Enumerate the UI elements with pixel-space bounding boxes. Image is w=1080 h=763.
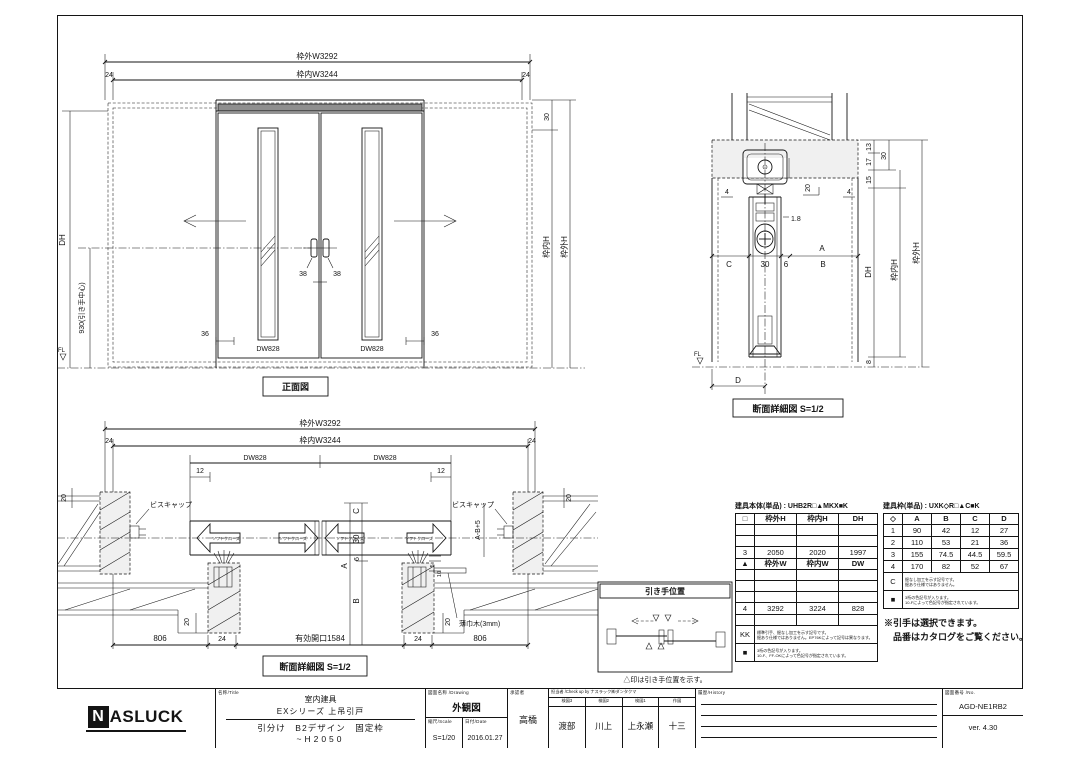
- skirting-label: 薄巾木(3mm): [459, 619, 500, 628]
- note-text: 3桁の色記号が入ります。10-Fによって色記号が指定されています。: [903, 591, 1019, 609]
- title-block: N ASLUCK 名称/Title 室内建具 EXシリーズ 上吊引戸 引分け B…: [57, 688, 1023, 748]
- view-title: 正面図: [282, 382, 309, 392]
- floor-level-label: FL: [58, 348, 66, 354]
- handle-mark-bottom: [646, 643, 652, 649]
- dim-label: 1.8: [791, 216, 801, 223]
- checker-name: 十三: [659, 707, 695, 732]
- dim-label: 8: [866, 360, 873, 364]
- product-series: EXシリーズ 上吊引戸: [216, 706, 425, 717]
- approver-label: 承認者: [510, 690, 524, 696]
- dim-label: 30: [544, 113, 551, 121]
- note-text: 標準引手、掘なし加工を示す記号です。掘あり仕様ではありません。EP76Kによって…: [755, 626, 878, 644]
- version: ver. 4.30: [943, 723, 1023, 732]
- section-walls: [712, 178, 858, 362]
- checker-role: 検図2: [586, 698, 622, 707]
- cell: 21: [961, 537, 990, 549]
- checker-col: 検図3 渡部: [549, 698, 586, 748]
- front-dimensions-small: 38 38 36 36 DW828 DW828: [201, 258, 439, 353]
- door-width-label: DW828: [373, 455, 396, 462]
- cell: 74.5: [932, 549, 961, 561]
- dim-label: 枠内W3244: [299, 435, 341, 445]
- frame-table: ◇ABCD 190421227 2110532136 315574.544.55…: [883, 513, 1019, 609]
- handle-position-drawing: 引き手位置 △印は引き手位置を示す。: [595, 578, 740, 690]
- dim-label: 20: [445, 618, 452, 626]
- cell: 59.5: [990, 549, 1019, 561]
- cell: 3292: [755, 603, 797, 615]
- checker-col: 作図 十三: [659, 698, 695, 748]
- right-wall-plan: ビスキャップ: [452, 492, 598, 574]
- dim-label: 30: [881, 152, 888, 160]
- cell: 3: [884, 549, 903, 561]
- note-text: 掘なし加工を示す記号です。掘あり仕様ではありません。: [903, 573, 1019, 591]
- dim-label: 10: [437, 571, 443, 577]
- th: □: [736, 514, 755, 525]
- drawing-sheet: 枠外W3292 枠内W3244 24 24: [0, 0, 1080, 763]
- cell: 1997: [839, 547, 878, 559]
- left-door-panel: [218, 113, 319, 358]
- dim-label: 4: [847, 189, 851, 196]
- cell: 1: [884, 525, 903, 537]
- handle-position-caption: △印は引き手位置を示す。: [623, 675, 706, 684]
- th: 枠内W: [797, 559, 839, 570]
- scale-label: 縮尺/Scale: [428, 719, 452, 725]
- checker-name: 渡部: [549, 707, 585, 732]
- cell: 155: [903, 549, 932, 561]
- dim-label: C: [726, 260, 732, 269]
- dim-label: 13: [866, 143, 873, 151]
- cell: 4: [736, 603, 755, 615]
- th: A: [903, 514, 932, 525]
- checker-role: 検図3: [549, 698, 585, 707]
- door-body-table-wrap: 建具本体(単品) : UHB2R□▲MKX■K □枠外H枠内HDH 320502…: [735, 501, 878, 662]
- dim-label: 枠外W3292: [296, 51, 338, 61]
- front-elevation-drawing: 枠外W3292 枠内W3244 24 24: [55, 30, 595, 405]
- th: D: [990, 514, 1019, 525]
- history-line: [701, 715, 937, 716]
- view-title: 断面詳細図 S=1/2: [279, 661, 350, 672]
- dim-label: 24: [522, 72, 530, 79]
- note-line: ※引手は選択できます。: [884, 616, 1028, 630]
- dim-label: 枠内H: [541, 236, 551, 258]
- screw-cap-left: [130, 526, 139, 538]
- th: DW: [839, 559, 878, 570]
- floor-level-icon: [697, 358, 703, 364]
- cell: 828: [839, 603, 878, 615]
- front-door-assembly: [184, 100, 456, 368]
- checkers-header: 担当者 /Check up by ナスラック㈱ダンタクマ: [549, 689, 695, 698]
- scale-value: S=1/20: [433, 735, 455, 742]
- dim-label: 24: [528, 438, 536, 445]
- lower-studs: 20 20 薄巾木(3mm): [57, 568, 598, 633]
- dim-label: A-B+5: [475, 520, 482, 540]
- history-cell: 履歴/History: [696, 689, 943, 748]
- dim-label: 枠外W3292: [299, 418, 341, 428]
- front-dimensions-top: 枠外W3292 枠内W3244 24 24: [103, 51, 532, 100]
- cell: 44.5: [961, 549, 990, 561]
- door-width-label: DW828: [243, 455, 266, 462]
- front-view-caption: 正面図: [263, 377, 328, 396]
- dim-label: 6: [784, 260, 789, 269]
- handle-position-title: 引き手位置: [645, 586, 685, 596]
- product-name-cell: 名称/Title 室内建具 EXシリーズ 上吊引戸 引分け B2デザイン 固定枠…: [216, 689, 426, 748]
- dim-label: C: [352, 508, 361, 514]
- cell: 53: [932, 537, 961, 549]
- dim-label: 38: [333, 271, 341, 278]
- note-key: ■: [884, 591, 903, 609]
- note-key: C: [884, 573, 903, 591]
- view-title: 断面詳細図 S=1/2: [752, 403, 823, 414]
- frame-table-title: 建具枠(単品) : UXK◇R□▲C■K: [883, 501, 1019, 511]
- dim-label: A: [340, 563, 349, 569]
- cell: 2050: [755, 547, 797, 559]
- dim-label: 5: [430, 564, 436, 567]
- name-label: 名称/Title: [218, 690, 239, 696]
- dim-label: 枠外H: [559, 236, 569, 258]
- top-track: [218, 104, 422, 111]
- dim-label: DH: [58, 234, 67, 246]
- cell: 42: [932, 525, 961, 537]
- cell: 67: [990, 561, 1019, 573]
- screw-cap-right: [504, 526, 513, 538]
- cell: 12: [961, 525, 990, 537]
- door-body-table-title: 建具本体(単品) : UHB2R□▲MKX■K: [735, 501, 878, 511]
- scale-cell: 縮尺/Scale S=1/20: [426, 718, 463, 748]
- dim-label: 4: [725, 189, 729, 196]
- cell: 2: [884, 537, 903, 549]
- cell: 90: [903, 525, 932, 537]
- date-label: 日付/Date: [465, 719, 487, 725]
- note-key: KK: [736, 626, 755, 644]
- logo-text: ASLUCK: [110, 708, 184, 725]
- date-value: 2016.01.27: [467, 735, 502, 742]
- dim-label: 20: [61, 494, 68, 502]
- right-door-panel: [321, 113, 422, 358]
- floor-level-icon: [60, 354, 66, 360]
- cell: 3: [736, 547, 755, 559]
- checkers-cell: 担当者 /Check up by ナスラック㈱ダンタクマ 検図3 渡部 検図2 …: [549, 689, 696, 748]
- dim-label: 24: [105, 72, 113, 79]
- door-width-label: DW828: [256, 346, 279, 353]
- front-opening-outline: [108, 103, 532, 367]
- dim-label: 36: [431, 331, 439, 338]
- drawing-number-cell: 図面番号 /No. AGD-NE1RB2 ver. 4.30: [943, 689, 1023, 748]
- soft-close-label: ソフトクローズ: [405, 535, 433, 541]
- drawing-number-label: 図面番号 /No.: [945, 690, 975, 696]
- th: 枠内H: [797, 514, 839, 525]
- note-line: 品番はカタログをご覧ください。: [884, 630, 1028, 644]
- cell: 4: [884, 561, 903, 573]
- cell: 170: [903, 561, 932, 573]
- cell: 110: [903, 537, 932, 549]
- th: ◇: [884, 514, 903, 525]
- wall-studs: [732, 93, 847, 140]
- dim-label: B: [352, 598, 361, 603]
- soft-close-label: ソフトクローズ: [212, 535, 240, 541]
- cell: 27: [990, 525, 1019, 537]
- dim-label: 17: [866, 158, 873, 166]
- history-line: [701, 737, 937, 738]
- front-dimensions-right: 30 枠内H 枠外H: [532, 100, 576, 368]
- cell: 36: [990, 537, 1019, 549]
- plan-dimensions-bottom: 806 24 有効開口1584 24 806: [111, 574, 530, 649]
- date-cell: 日付/Date 2016.01.27: [463, 718, 507, 748]
- plan-section-caption: 断面詳細図 S=1/2: [263, 656, 367, 676]
- dim-label: 枠内W3244: [296, 69, 338, 79]
- screw-cap-label: ビスキャップ: [150, 500, 192, 509]
- dim-label: 20: [566, 494, 573, 502]
- dim-label: 24: [414, 636, 422, 643]
- door-body-table: □枠外H枠内HDH 3205020201997 ▲枠外W枠内WDW 432923…: [735, 513, 878, 662]
- th: C: [961, 514, 990, 525]
- handle-selection-note: ※引手は選択できます。 品番はカタログをご覧ください。: [884, 616, 1028, 645]
- checker-col: 検図2 川上: [586, 698, 623, 748]
- checker-name: 上永瀬: [623, 707, 659, 732]
- th: DH: [839, 514, 878, 525]
- th: 枠外W: [755, 559, 797, 570]
- dim-label: 930(引き手中心): [77, 282, 86, 333]
- cell: 52: [961, 561, 990, 573]
- dim-label: 24: [218, 636, 226, 643]
- screw-cap-label: ビスキャップ: [452, 500, 494, 509]
- left-wall-plan: ビスキャップ: [57, 492, 192, 574]
- vertical-section-caption: 断面詳細図 S=1/2: [733, 399, 843, 417]
- dim-label: 38: [299, 271, 307, 278]
- drawing-name-cell: 図面名称 /Drawing 外観図 縮尺/Scale S=1/20 日付/Dat…: [426, 689, 508, 748]
- dim-label: 24: [105, 438, 113, 445]
- dim-label: 6: [354, 557, 361, 561]
- dim-label: 枠内H: [889, 259, 899, 281]
- dim-label: 枠外H: [911, 242, 921, 264]
- plan-section-drawing: 枠外W3292 枠内W3244 24 24 DW828 DW828 12 12 …: [55, 410, 600, 690]
- dim-label: 有効開口1584: [295, 633, 345, 643]
- product-height: ~H2050: [216, 734, 425, 744]
- pocket-posts: [208, 550, 434, 633]
- dim-label: 12: [196, 468, 204, 475]
- dim-label: D: [735, 376, 741, 385]
- floor-level-label: FL: [694, 352, 702, 358]
- checker-col: 検図1 上永瀬: [623, 698, 660, 748]
- history-line: [701, 704, 937, 705]
- dim-label: B: [820, 260, 825, 269]
- handle-mark-top: [653, 615, 659, 621]
- cell: 3224: [797, 603, 839, 615]
- checker-name: 川上: [586, 707, 622, 732]
- dim-label: 806: [153, 634, 167, 643]
- drawing-label: 図面名称 /Drawing: [428, 690, 469, 696]
- approver-cell: 承認者 高橋: [508, 689, 549, 748]
- th: 枠外H: [755, 514, 797, 525]
- dim-label: 12: [437, 468, 445, 475]
- frame-table-wrap: 建具枠(単品) : UXK◇R□▲C■K ◇ABCD 190421227 211…: [883, 501, 1019, 609]
- logo-n-icon: N: [88, 706, 109, 728]
- section-dimensions: 4 4 20 1.8 A C 30 6 B 13 17 15 DH 8: [692, 140, 930, 396]
- note-key: ■: [736, 644, 755, 662]
- product-spec: 引分け B2デザイン 固定枠: [216, 722, 425, 734]
- company-logo: N ASLUCK: [57, 689, 216, 748]
- cell: 82: [932, 561, 961, 573]
- dim-label: DH: [864, 266, 873, 278]
- approver-name: 高橋: [508, 713, 548, 726]
- cell: 2020: [797, 547, 839, 559]
- history-label: 履歴/History: [698, 690, 725, 696]
- checker-role: 作図: [659, 698, 695, 707]
- drawing-name: 外観図: [452, 700, 481, 714]
- dim-label: 15: [866, 176, 873, 184]
- handle-mark-top: [665, 615, 671, 621]
- door-width-label: DW828: [360, 346, 383, 353]
- th: ▲: [736, 559, 755, 570]
- dim-label: A: [819, 244, 825, 253]
- plan-dimensions-top: 枠外W3292 枠内W3244 24 24 DW828 DW828 12 12 …: [61, 418, 573, 521]
- dim-label: 20: [805, 184, 812, 192]
- header-block: [712, 140, 858, 178]
- drawing-number: AGD-NE1RB2: [943, 702, 1023, 716]
- vertical-section-drawing: 4 4 20 1.8 A C 30 6 B 13 17 15 DH 8: [690, 80, 1025, 425]
- history-line: [701, 726, 937, 727]
- dim-label: 806: [473, 634, 487, 643]
- product-category: 室内建具: [216, 694, 425, 705]
- dim-label: 30: [352, 534, 361, 543]
- handle-position-diagram: [607, 615, 725, 649]
- dim-label: 36: [201, 331, 209, 338]
- th: B: [932, 514, 961, 525]
- dim-label: 20: [184, 618, 191, 626]
- note-text: 3桁の色記号が入ります。10-F、FF-OKによって色記号が指定されています。: [755, 644, 878, 662]
- checker-role: 検図1: [623, 698, 659, 707]
- soft-close-label: ソフトクローズ: [279, 535, 307, 541]
